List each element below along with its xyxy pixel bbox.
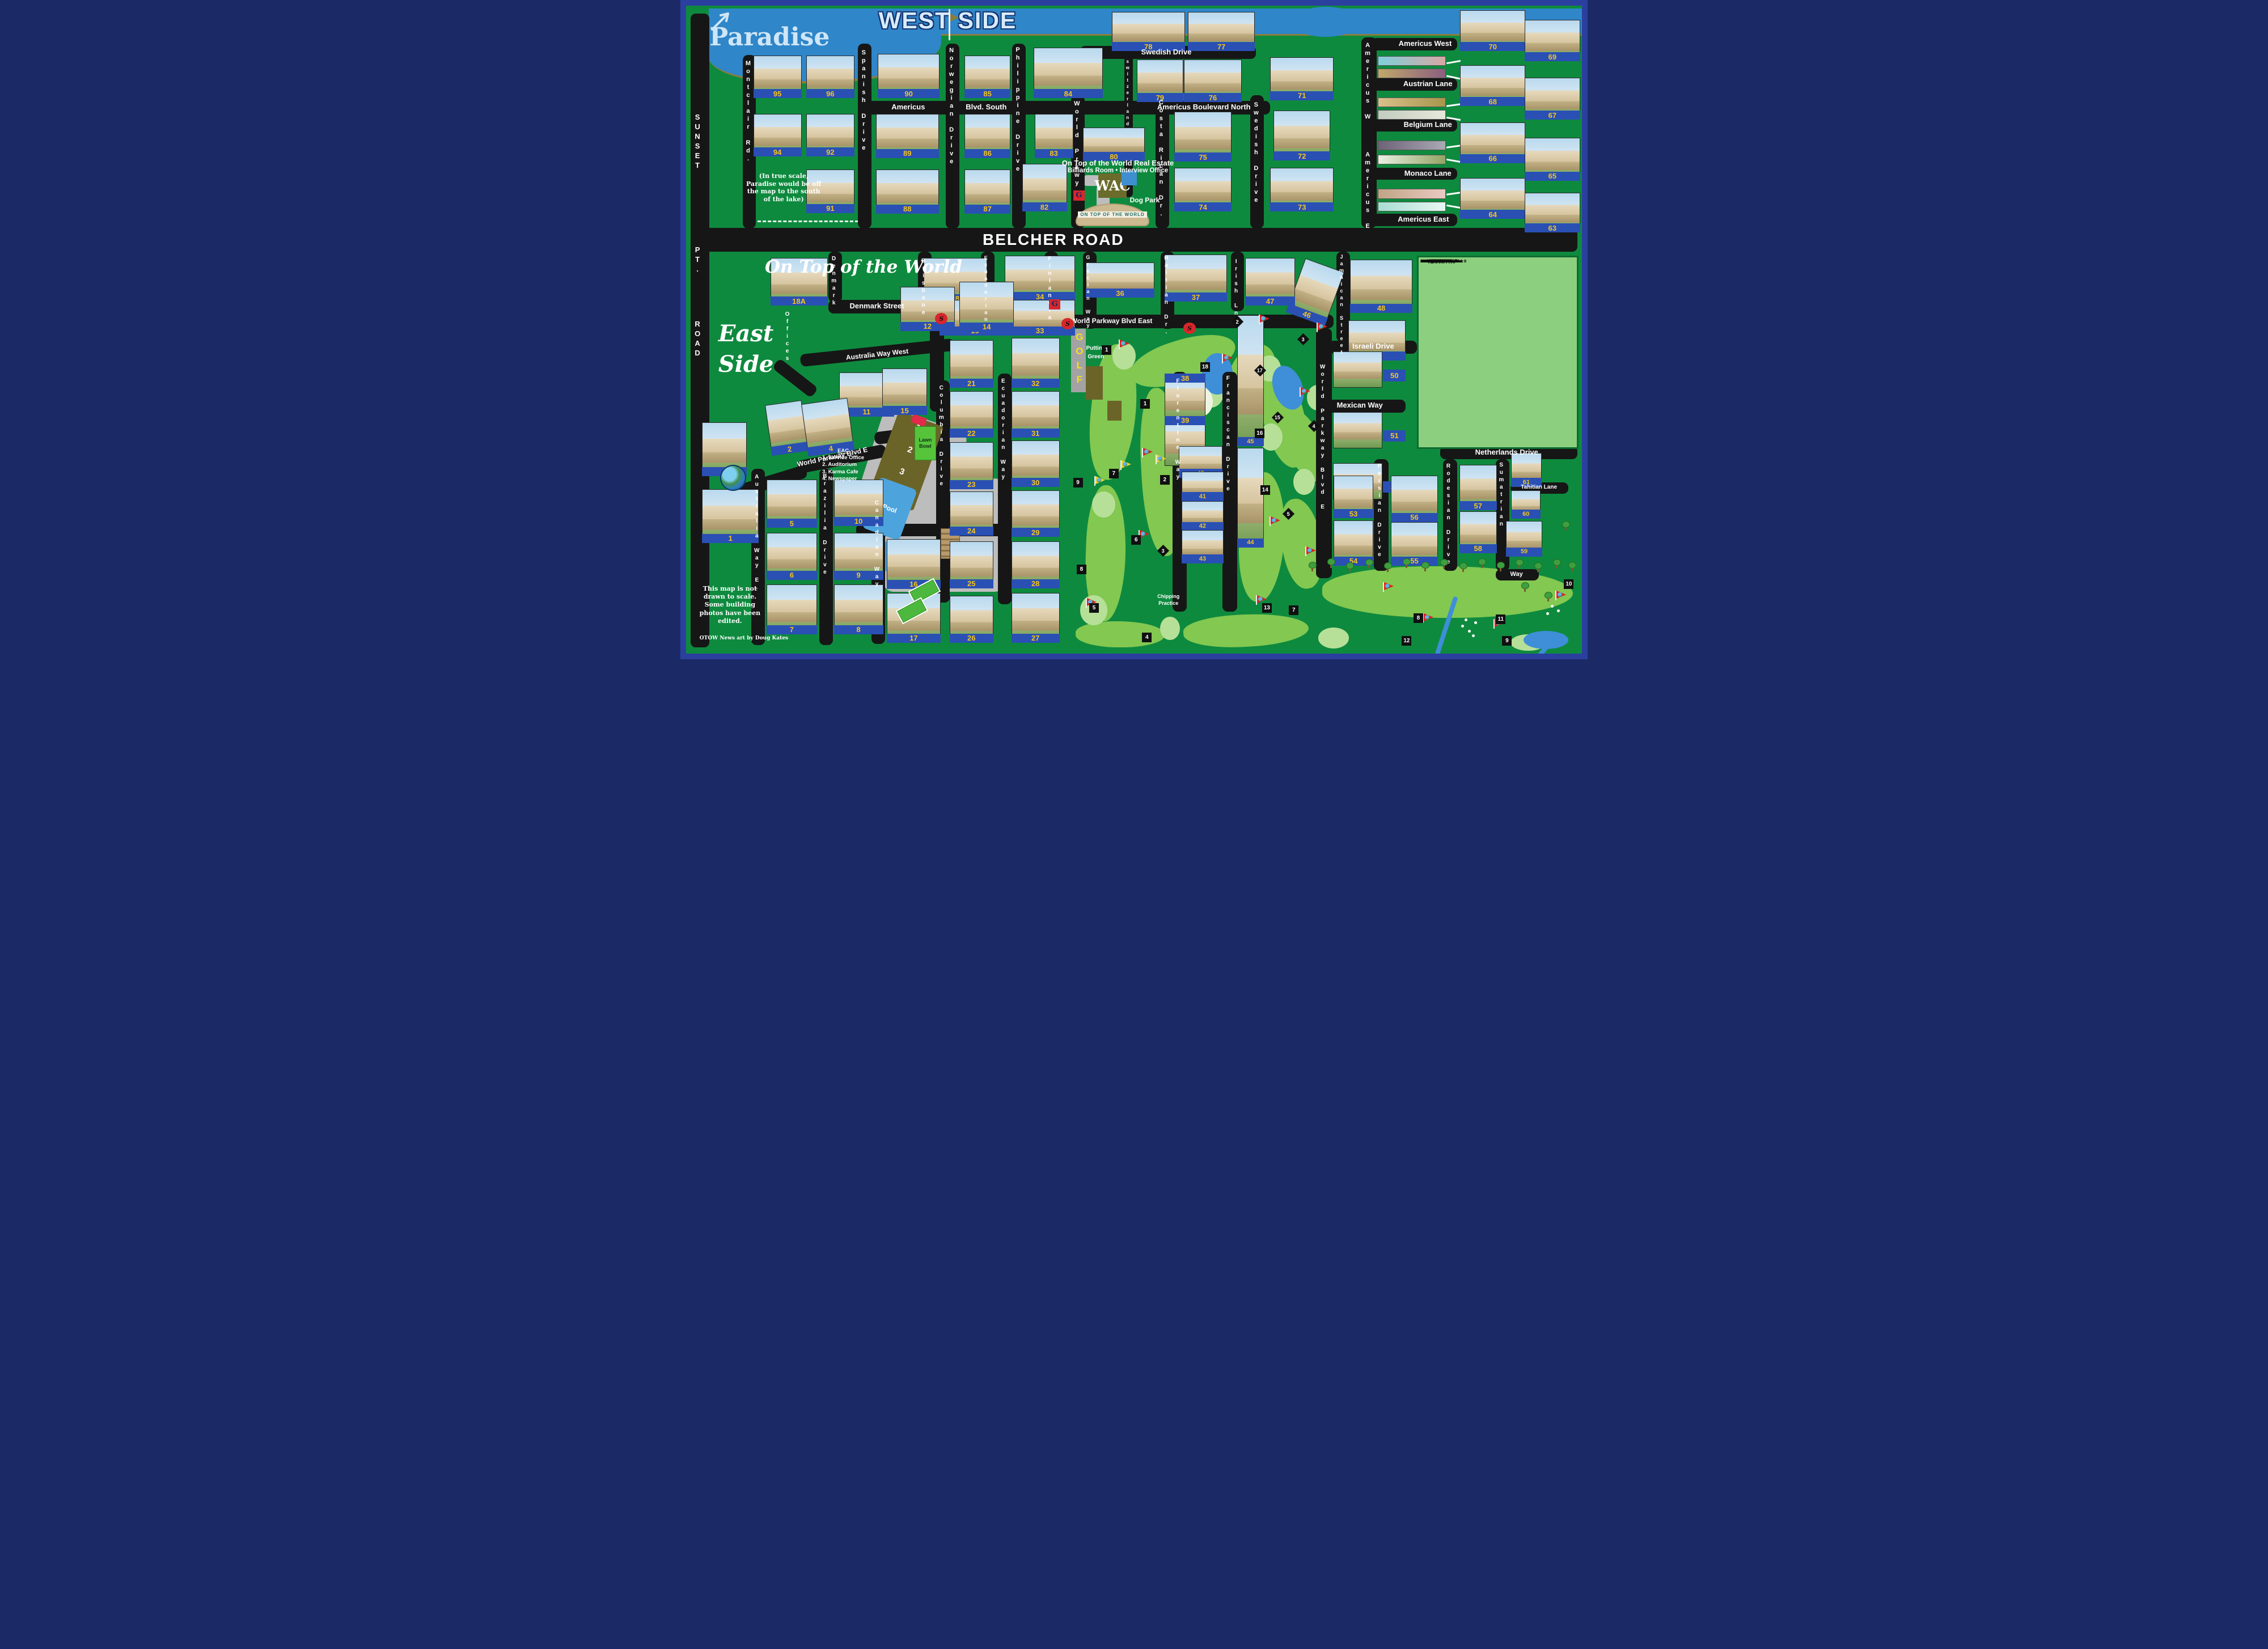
building-number: 36 <box>1086 289 1155 298</box>
building-44: 44 <box>1237 448 1264 548</box>
lane-building-strip <box>1378 69 1446 78</box>
building-89: 89 <box>876 114 939 158</box>
building-61: 61 <box>1511 453 1542 488</box>
building-58: 58 <box>1459 511 1497 553</box>
building-59: 59 <box>1506 521 1543 557</box>
building-45: 45 <box>1237 315 1264 446</box>
building-number: 22 <box>950 429 993 438</box>
building-number: 91 <box>806 204 854 213</box>
street-label-swedish-drive: Swedish Drive <box>1141 48 1191 56</box>
street-label-americus-w: Americus W <box>1364 42 1371 121</box>
building-57: 57 <box>1459 465 1497 510</box>
photo-connector-line <box>1446 192 1461 196</box>
building-number: 65 <box>1525 172 1580 181</box>
eac-legend: EAC 1. Service Office2. Auditorium3. Kar… <box>822 448 864 483</box>
building-83: 83 <box>1035 114 1073 158</box>
building-69: 69 <box>1525 20 1580 61</box>
street-label-monaco-lane: Monaco Lane <box>1404 169 1452 177</box>
legend-item: 96. Sir Lancelot <box>1420 260 1448 264</box>
building-number: 29 <box>1012 528 1060 537</box>
golf-hole-marker-2: 2 <box>1160 475 1170 485</box>
street-label-switzerland: switzerland <box>1125 59 1130 128</box>
building-number: 48 <box>1350 304 1413 313</box>
building-76: 76 <box>1184 60 1241 102</box>
golf-flag-icon <box>1423 613 1434 624</box>
tree-icon <box>1478 558 1486 569</box>
golf-hole-marker-5: 5 <box>1089 603 1099 613</box>
building-55: 55 <box>1391 522 1437 566</box>
building-number: 6 <box>767 571 816 580</box>
photo-connector-line <box>1446 159 1461 163</box>
street-label-ecuadorian: Ecuadorian <box>983 255 989 323</box>
street-label-ecuadorian-way: Ecuadorian Way <box>1000 378 1006 481</box>
building-26: 26 <box>950 596 993 642</box>
building-95: 95 <box>754 56 802 98</box>
building-80: 80 <box>1083 128 1145 161</box>
golf-flag-icon <box>1270 516 1281 527</box>
west-side-title: WEST SIDE <box>879 7 1017 34</box>
street-label-blvd-south: Blvd. South <box>966 103 1006 111</box>
building-number: 89 <box>876 149 939 158</box>
east-side-line1: East <box>718 319 774 349</box>
building-number: 55 <box>1391 557 1437 566</box>
golf-hole-marker-12: 12 <box>1402 636 1411 646</box>
street-label-americus-e: Americus E <box>1364 151 1371 231</box>
building-number: 59 <box>1506 548 1543 557</box>
building-30: 30 <box>1012 440 1060 487</box>
building-number: 18A <box>771 296 828 306</box>
golf-green <box>1318 628 1349 648</box>
paradise-scale-note: (In true scale, Paradise would be off th… <box>743 172 824 204</box>
golf-flag-icon <box>1555 591 1567 601</box>
tree-icon <box>1545 592 1552 602</box>
tree-icon <box>1459 562 1467 573</box>
building-60: 60 <box>1511 490 1541 519</box>
street-label-world-parkway-blvd-e: World Parkway Blvd E <box>1319 364 1326 511</box>
street-label-americus: Americus <box>891 103 925 111</box>
tree-icon <box>1553 559 1561 569</box>
building-number: 28 <box>1012 579 1060 588</box>
golf-ball-dot <box>1465 618 1467 621</box>
east-side-line2: Side <box>718 349 774 380</box>
otow-entrance-sign-text: ON TOP OF THE WORLD <box>1078 211 1146 218</box>
building-number: 58 <box>1459 544 1497 553</box>
building-photo <box>1237 315 1264 446</box>
street-label-haitian-dr: Haitian Dr. <box>1163 255 1169 336</box>
golf-flag-icon <box>1300 387 1311 397</box>
lane-building-strip <box>1378 141 1446 150</box>
lane-building-strip <box>1378 202 1446 211</box>
map-scale-note: This map is not drawn to scale. Some bui… <box>699 585 761 625</box>
golf-hole-marker-8: 8 <box>1414 613 1423 623</box>
building-87: 87 <box>964 169 1010 214</box>
building-56: 56 <box>1391 476 1437 522</box>
street-label-world-parkway-blvd-east: World Parkway Blvd East <box>1071 317 1153 325</box>
building-25: 25 <box>950 541 993 588</box>
building-84: 84 <box>1034 48 1103 98</box>
building-number: 71 <box>1270 91 1334 100</box>
golf-hole-marker-9: 9 <box>1502 636 1512 646</box>
building-29: 29 <box>1012 490 1060 537</box>
building-28: 28 <box>1012 541 1060 588</box>
building-number: 76 <box>1184 93 1241 102</box>
golf-hole-marker-6: 6 <box>1131 535 1141 545</box>
street-label-columbia-drive: Columbia Drive <box>938 385 945 488</box>
lane-building-strip <box>1378 110 1446 120</box>
tree-icon <box>1516 559 1524 569</box>
building-number: 1 <box>702 534 759 543</box>
photo-connector-line <box>1446 60 1461 64</box>
tree-icon <box>1384 562 1392 573</box>
building-photo <box>1333 351 1382 388</box>
golf-hole-marker-1: 1 <box>1102 345 1111 355</box>
building-51: 51 <box>1333 412 1382 448</box>
building-94: 94 <box>754 114 802 156</box>
golf-hole-marker-1: 1 <box>1140 399 1150 409</box>
street-label-pt: PT. <box>693 245 702 274</box>
golf-flag-icon <box>1259 315 1270 325</box>
building-63: 63 <box>1525 193 1580 232</box>
building-number: 63 <box>1525 223 1580 232</box>
street-label-norwegian-drive: Norwegian Drive <box>948 47 955 166</box>
building-82: 82 <box>1022 164 1067 212</box>
building-number: 32 <box>1012 379 1060 388</box>
building-8: 8 <box>834 584 883 634</box>
street-label-world-prkwy-w: World Prkwy W <box>1073 100 1080 204</box>
building-71: 71 <box>1270 57 1334 100</box>
golf-pennant-icon <box>1094 476 1106 486</box>
building-number: 70 <box>1460 42 1525 51</box>
building-number: 74 <box>1174 202 1232 211</box>
golf-hole-marker-8: 8 <box>1077 565 1086 574</box>
tree-icon <box>1403 558 1411 569</box>
building-72: 72 <box>1273 111 1330 160</box>
golf-ball-dot <box>1546 612 1549 615</box>
building-number: 56 <box>1391 513 1437 522</box>
building-32: 32 <box>1012 338 1060 388</box>
building-number: 75 <box>1174 152 1232 162</box>
tree-icon <box>1346 562 1354 573</box>
lake-pond-northeast <box>1292 7 1360 37</box>
street-label-austrian-lane: Austrian Lane <box>1403 79 1453 88</box>
building-number: 7 <box>767 625 816 634</box>
maintenance-area <box>1086 366 1103 400</box>
golf-fairway <box>1076 621 1165 647</box>
building-47: 47 <box>1245 258 1295 306</box>
street-label-brazilia-drive: Brazilia Drive <box>822 473 828 576</box>
eac-legend-line: 3. Karma Cafe <box>822 469 864 476</box>
golf-flag-icon <box>1142 448 1153 458</box>
building-number: 69 <box>1525 52 1580 61</box>
building-number: 73 <box>1270 202 1334 211</box>
street-label-florentine-way: Florentine Way <box>1175 378 1181 481</box>
street-label-canadian-way: Canadian Way <box>874 500 880 588</box>
building-38: 38 <box>1165 374 1206 422</box>
tree-icon <box>1440 559 1448 569</box>
building-53: 53 <box>1334 476 1373 518</box>
photo-connector-line <box>1446 205 1461 209</box>
building-34: 34 <box>1005 256 1074 301</box>
tree-icon <box>1521 582 1529 592</box>
paradise-title: Paradise <box>709 23 830 52</box>
golf-ball-dot <box>1557 609 1560 612</box>
building-5: 5 <box>767 480 816 528</box>
street-label-jamaican-street: Jamaican Street <box>1339 254 1344 356</box>
building-96: 96 <box>806 56 854 98</box>
street-label-montclair-rd: Montclair Rd. <box>744 60 751 163</box>
golf-hole-marker-14: 14 <box>1260 485 1270 495</box>
golf-hole-marker-13: 13 <box>1262 603 1272 613</box>
building-number: 67 <box>1525 111 1580 120</box>
building-86: 86 <box>964 114 1010 158</box>
building-number: 24 <box>950 527 993 536</box>
building-37: 37 <box>1165 255 1228 302</box>
street-label-israeli-drive: Israeli Drive <box>1352 342 1394 350</box>
building-number: 30 <box>1012 478 1060 487</box>
street-label-persian-drive: Persian Drive <box>1376 463 1382 559</box>
eac-building-number: 3 <box>898 466 906 477</box>
tree-icon <box>1421 562 1429 572</box>
building-number: 31 <box>1012 429 1060 438</box>
building-number: 72 <box>1273 151 1330 160</box>
tree-icon <box>1562 521 1570 531</box>
golf-green <box>1160 617 1180 640</box>
golf-hole-marker-10: 10 <box>1564 579 1573 589</box>
lane-building-strip <box>1378 98 1446 107</box>
building-78: 78 <box>1112 12 1186 51</box>
building-27: 27 <box>1012 593 1060 643</box>
golf-ball-dot <box>1461 625 1464 628</box>
building-number: 26 <box>950 634 993 643</box>
building-photo <box>1237 448 1264 548</box>
golf-hole-marker-7: 7 <box>1289 605 1298 615</box>
building-number: 43 <box>1182 554 1224 563</box>
building-79: 79 <box>1137 60 1183 102</box>
building-48: 48 <box>1350 260 1413 313</box>
golf-flag-icon <box>1317 323 1328 333</box>
building-66: 66 <box>1460 122 1525 163</box>
golf-ball-dot <box>1551 605 1554 608</box>
eac-building-number: 2 <box>906 444 914 455</box>
tree-icon <box>1309 562 1317 572</box>
street-label-way: Way <box>1510 571 1523 578</box>
building-number: 37 <box>1165 293 1228 302</box>
building-68: 68 <box>1460 65 1525 106</box>
building-number: 53 <box>1334 509 1373 518</box>
eac-legend-line: 2. Auditorium <box>822 461 864 468</box>
flag-decoration <box>950 14 959 22</box>
building-number: 41 <box>1182 492 1224 501</box>
street-label-mexican-way: Mexican Way <box>1337 401 1383 409</box>
building-number: 87 <box>964 205 1010 214</box>
golf-green <box>1092 491 1115 518</box>
golf-flag-icon <box>1383 582 1394 592</box>
building-number: 84 <box>1034 89 1103 98</box>
building-number: 60 <box>1511 510 1541 519</box>
lane-building-strip <box>1378 155 1446 164</box>
street-label-denmark-street: Denmark Street <box>849 302 904 310</box>
street-label-tahitian-lane: Tahitian Lane <box>1521 484 1557 490</box>
real-estate-label: On Top of the World Real Estate <box>1062 159 1174 167</box>
street-label-sunset: SUNSET <box>693 113 702 171</box>
building-number: 17 <box>887 634 941 643</box>
building-number: 14 <box>959 323 1014 332</box>
street-label-finlandia: Finlandia <box>1047 256 1053 322</box>
building-43: 43 <box>1182 530 1224 563</box>
building-number: 95 <box>754 89 802 98</box>
building-number: 5 <box>767 519 816 528</box>
building-number: 44 <box>1237 539 1264 548</box>
lane-building-strip <box>1378 56 1446 66</box>
dog-park-label: Dog Park <box>1130 196 1160 204</box>
building-15: 15 <box>882 368 927 415</box>
building-42: 42 <box>1182 501 1224 531</box>
lane-building-strip <box>1378 189 1446 198</box>
building-24: 24 <box>950 491 993 536</box>
tree-icon <box>1327 558 1335 569</box>
building-photo <box>1333 412 1382 448</box>
building-number: 51 <box>1383 430 1406 442</box>
tree-icon <box>1365 559 1373 569</box>
building-41: 41 <box>1182 472 1224 502</box>
chipping-practice-label: Chipping Practice <box>1154 593 1183 607</box>
building-number: 83 <box>1035 149 1073 158</box>
building-number: 90 <box>878 89 940 98</box>
street-label-philippine-drive: Philippine Drive <box>1014 46 1021 173</box>
golf-pennant-icon <box>1120 460 1132 470</box>
road-belcher <box>691 228 1577 252</box>
east-side-otow-title: On Top of the World <box>765 257 962 277</box>
street-label-sumatrian: Sumatrian <box>1498 462 1504 528</box>
street-label-swedish-drive: Swedish Drive <box>1253 101 1259 205</box>
building-90: 90 <box>878 54 940 99</box>
building-number: 21 <box>950 379 993 388</box>
golf-flag-icon <box>1119 340 1130 350</box>
building-name-legend: 1. New World French2. Danish Modern3. Ch… <box>1417 256 1578 449</box>
building-number: 92 <box>806 147 854 156</box>
paradise-boundary-dash <box>752 221 864 222</box>
golf-green <box>1293 469 1315 495</box>
tree-icon <box>1534 562 1542 573</box>
credit-note: OTOW News art by Doug Kates <box>700 635 788 641</box>
building-31: 31 <box>1012 391 1060 438</box>
golf-hole-marker-4: 4 <box>1142 633 1152 642</box>
building-number: 88 <box>876 205 939 214</box>
street-label-irish-ln: Irish Ln. <box>1233 258 1239 325</box>
building-number: 45 <box>1237 437 1264 446</box>
building-number: 96 <box>806 89 854 98</box>
street-label-belcher-road: BELCHER ROAD <box>983 231 1124 249</box>
building-85: 85 <box>964 56 1010 98</box>
maintenance-area <box>1107 401 1122 420</box>
building-number: 27 <box>1012 634 1060 643</box>
building-36: 36 <box>1086 262 1155 298</box>
building-number: 47 <box>1245 296 1295 306</box>
building-number: 12 <box>900 322 955 331</box>
golf-flag-icon <box>1305 546 1317 557</box>
building-number: 82 <box>1022 202 1067 211</box>
tree-icon <box>1497 562 1505 572</box>
street-label-belgium-lane: Belgium Lane <box>1404 120 1452 129</box>
building-75: 75 <box>1174 112 1232 162</box>
building-number: 8 <box>834 625 883 634</box>
street-label-spanish-drive: Spanish Drive <box>860 49 867 152</box>
street-label-australia-way-e: Australia Way E. <box>754 474 760 592</box>
building-77: 77 <box>1188 12 1255 51</box>
golf-hole-marker-9: 9 <box>1073 478 1083 488</box>
building-number: 94 <box>754 147 802 156</box>
eac-legend-line: 4. Newspaper <box>822 476 864 482</box>
street-label-americus-boulevard-north: Americus Boulevard North <box>1157 103 1251 111</box>
east-side-title: East Side <box>718 319 774 380</box>
building-number: 68 <box>1460 97 1525 106</box>
building-number: 66 <box>1460 154 1525 163</box>
building-number: 15 <box>882 406 927 415</box>
building-73: 73 <box>1270 168 1334 212</box>
building-64: 64 <box>1460 178 1525 219</box>
building-number: 25 <box>950 579 993 588</box>
building-number: 77 <box>1188 42 1255 51</box>
otow-entrance-sign: ON TOP OF THE WORLD <box>1076 204 1149 226</box>
street-label-rodesian-drive: Rodesian Drive <box>1445 463 1452 566</box>
gate-marker-g: G <box>1073 190 1085 201</box>
building-74: 74 <box>1174 168 1232 212</box>
golf-ball-dot <box>1468 630 1471 633</box>
building-12: 12 <box>900 287 955 331</box>
street-label-road: ROAD <box>693 320 702 358</box>
eac-legend-line: 1. Service Office <box>822 455 864 461</box>
building-23: 23 <box>950 442 993 489</box>
building-22: 22 <box>950 391 993 438</box>
building-number: 39 <box>1165 416 1206 425</box>
tree-icon <box>1568 562 1576 572</box>
building-92: 92 <box>806 114 854 156</box>
billiards-interview-label: Billiards Room • Interview Office <box>1068 167 1168 174</box>
golf-pennant-icon <box>1156 455 1167 465</box>
building-21: 21 <box>950 340 993 388</box>
street-label-americus-east: Americus East <box>1398 215 1449 223</box>
building-50: 50 <box>1333 351 1382 388</box>
golf-ball-dot <box>1474 621 1477 624</box>
building-number: 50 <box>1383 370 1406 381</box>
building-number: 38 <box>1165 374 1206 383</box>
golf-hole-marker-11: 11 <box>1496 614 1505 624</box>
building-33: 33 <box>1005 300 1074 336</box>
otow-community-map: Paradise WEST SIDE On Top of the World E… <box>680 0 1588 659</box>
building-65: 65 <box>1525 138 1580 180</box>
building-number: 64 <box>1460 210 1525 219</box>
building-number: 23 <box>950 480 993 489</box>
golf-hole-marker-16: 16 <box>1255 429 1264 438</box>
eac-legend-title: EAC <box>822 448 864 455</box>
street-label-americus-west: Americus West <box>1399 39 1452 48</box>
stop-marker-s: S <box>1183 323 1196 334</box>
street-label-offices: Offices <box>784 311 790 363</box>
photo-connector-line <box>1446 103 1461 107</box>
golf-fairway <box>1183 612 1310 651</box>
lawn-bowl-court: Lawn Bowl <box>915 426 936 461</box>
building-number: 85 <box>964 89 1010 98</box>
golf-flag-icon <box>1222 354 1233 364</box>
building-6: 6 <box>767 533 816 579</box>
photo-connector-line <box>1446 145 1461 148</box>
building-7: 7 <box>767 584 816 634</box>
golf-hole-marker-3: 3 <box>1297 333 1309 345</box>
globe-icon <box>720 465 746 491</box>
building-67: 67 <box>1525 78 1580 120</box>
building-70: 70 <box>1460 10 1525 51</box>
building-number: 86 <box>964 149 1010 158</box>
